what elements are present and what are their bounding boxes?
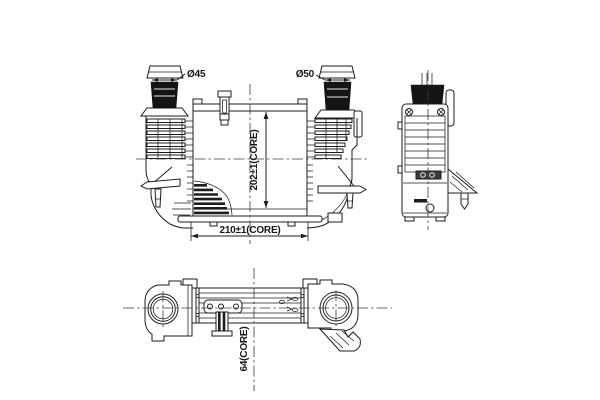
left-inlet bbox=[147, 66, 183, 108]
left-mounting-bracket bbox=[141, 167, 180, 207]
left-inlet-boot bbox=[151, 82, 178, 108]
left-end-tank bbox=[145, 281, 192, 341]
left-collar bbox=[141, 108, 188, 116]
left-mount-pin bbox=[155, 189, 161, 207]
side-pipe-stubs bbox=[422, 73, 432, 85]
right-mount-pin bbox=[347, 193, 353, 208]
left-tank bbox=[141, 108, 193, 228]
right-inlet-boot bbox=[324, 82, 351, 110]
technical-drawing-canvas: Ø45 Ø50 202±1(CORE) 210±1(CORE) bbox=[0, 0, 600, 400]
side-body bbox=[398, 104, 448, 221]
side-boot bbox=[411, 85, 444, 104]
dim-label-core-width: 210±1(CORE) bbox=[219, 225, 280, 236]
left-rib-grid bbox=[147, 119, 185, 159]
top-mounting-bracket bbox=[218, 91, 231, 125]
dim-core-depth: 64(CORE) bbox=[239, 326, 250, 371]
front-view: Ø45 Ø50 202±1(CORE) 210±1(CORE) bbox=[136, 66, 368, 244]
right-inlet bbox=[319, 66, 355, 110]
intercooler-drawing: Ø45 Ø50 202±1(CORE) 210±1(CORE) bbox=[0, 0, 600, 400]
dim-label-core-depth: 64(CORE) bbox=[239, 326, 250, 371]
dim-label-core-height: 202±1(CORE) bbox=[249, 129, 260, 190]
bottom-right-bracket bbox=[320, 329, 360, 351]
side-mounting-bracket bbox=[448, 169, 477, 209]
side-mount-pin bbox=[461, 193, 468, 209]
side-view bbox=[398, 70, 477, 230]
core-left-tabs bbox=[185, 121, 193, 201]
core-right-tabs bbox=[307, 121, 315, 201]
side-stamp bbox=[414, 199, 427, 203]
right-rib-grid bbox=[315, 119, 352, 159]
right-tank bbox=[307, 110, 366, 228]
bottom-body bbox=[183, 279, 317, 336]
side-slot bbox=[416, 171, 441, 179]
dim-label-left-port: Ø45 bbox=[187, 69, 206, 80]
right-collar bbox=[315, 110, 360, 118]
right-mounting-bracket bbox=[318, 166, 366, 222]
right-end-tank bbox=[308, 280, 360, 351]
bottom-view: 64(CORE) bbox=[123, 268, 392, 391]
dim-label-right-port: Ø50 bbox=[296, 69, 315, 80]
